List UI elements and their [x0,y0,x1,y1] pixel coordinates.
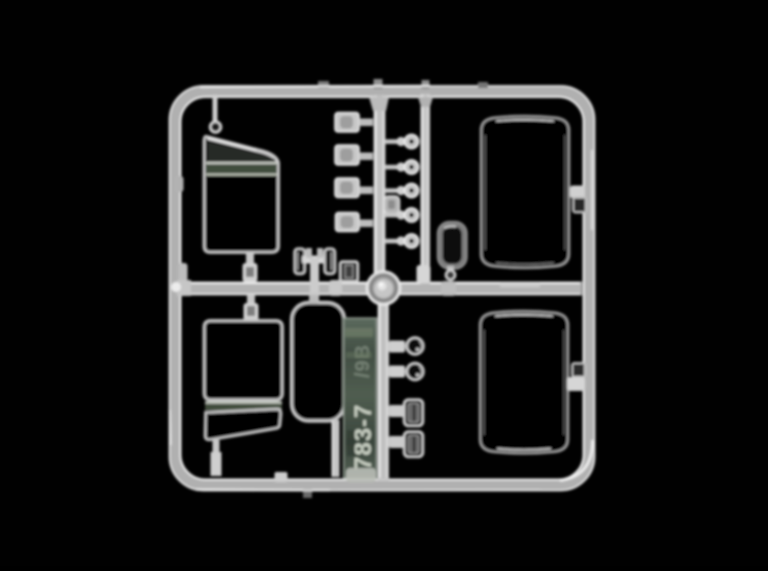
svg-text:/9B: /9B [352,344,374,378]
